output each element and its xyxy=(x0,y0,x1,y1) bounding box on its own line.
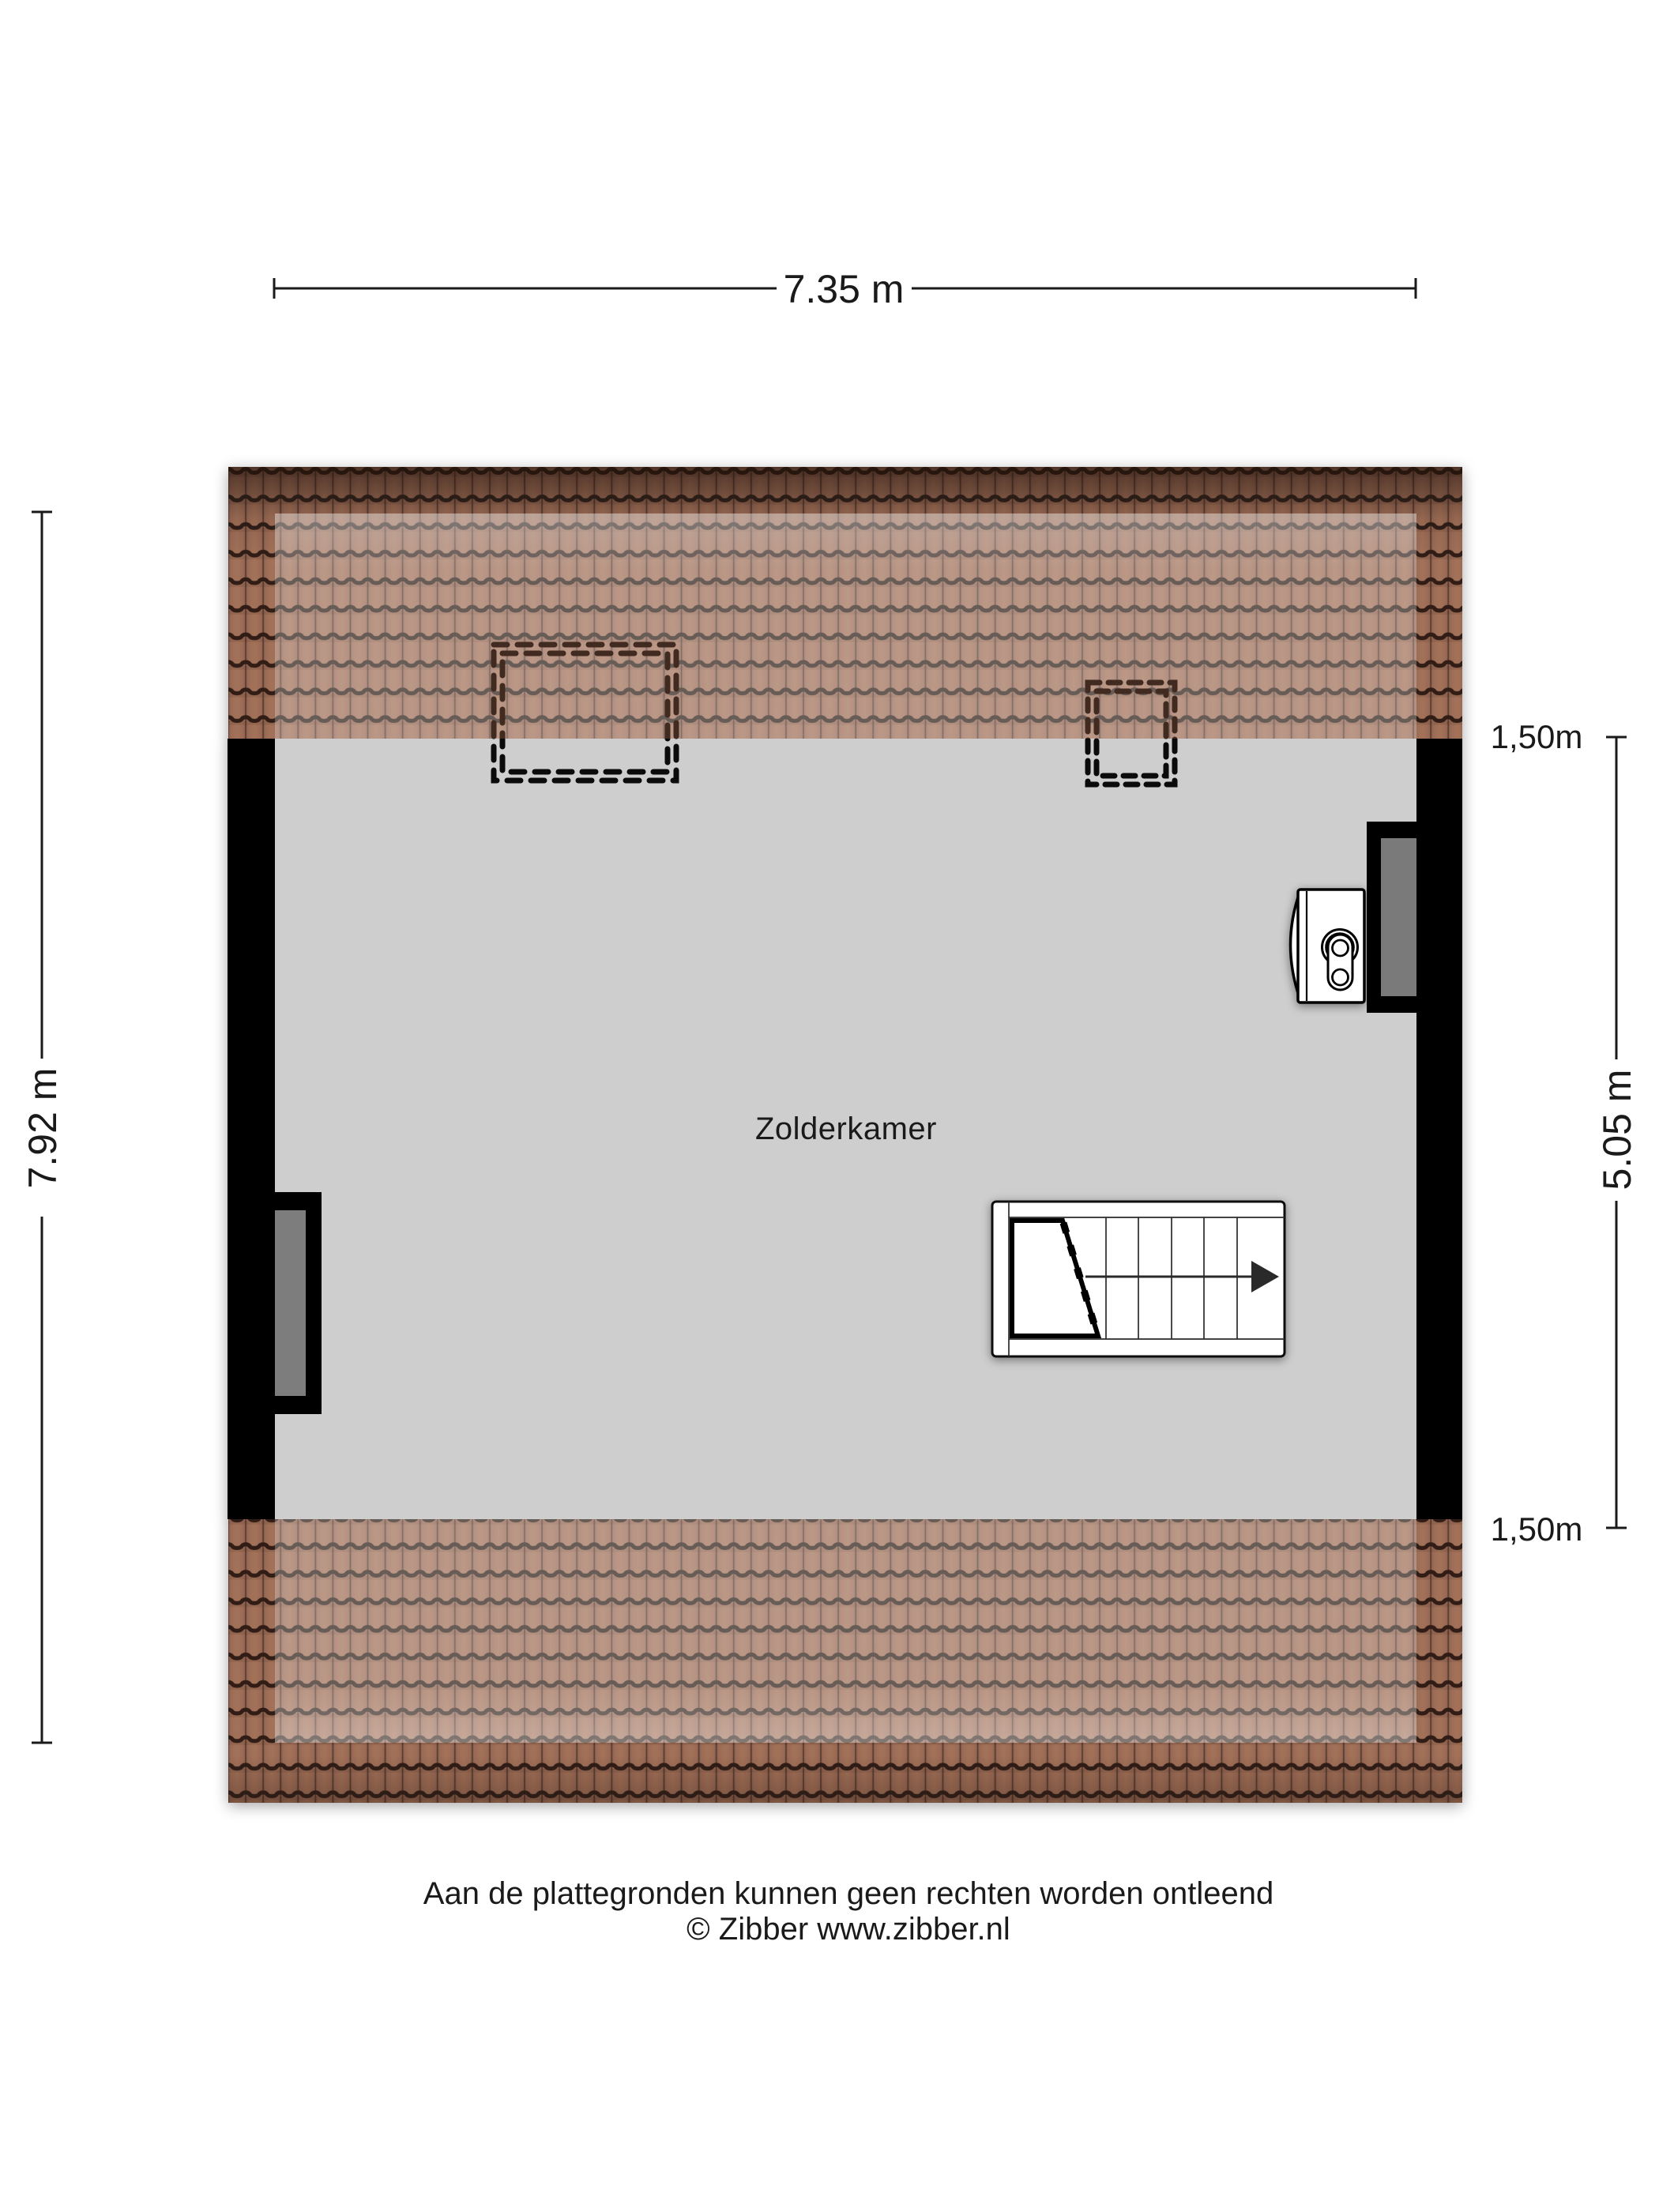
svg-text:1,50m: 1,50m xyxy=(1491,1510,1583,1548)
svg-text:7.92 m: 7.92 m xyxy=(21,1068,65,1189)
svg-text:7.35 m: 7.35 m xyxy=(784,267,905,311)
svg-text:Zolderkamer: Zolderkamer xyxy=(755,1112,937,1146)
svg-text:5.05 m: 5.05 m xyxy=(1595,1070,1639,1191)
svg-text:1,50m: 1,50m xyxy=(1491,718,1583,755)
svg-text:© Zibber www.zibber.nl: © Zibber www.zibber.nl xyxy=(687,1912,1010,1947)
svg-text:Aan de plattegronden kunnen ge: Aan de plattegronden kunnen geen rechten… xyxy=(423,1876,1273,1911)
